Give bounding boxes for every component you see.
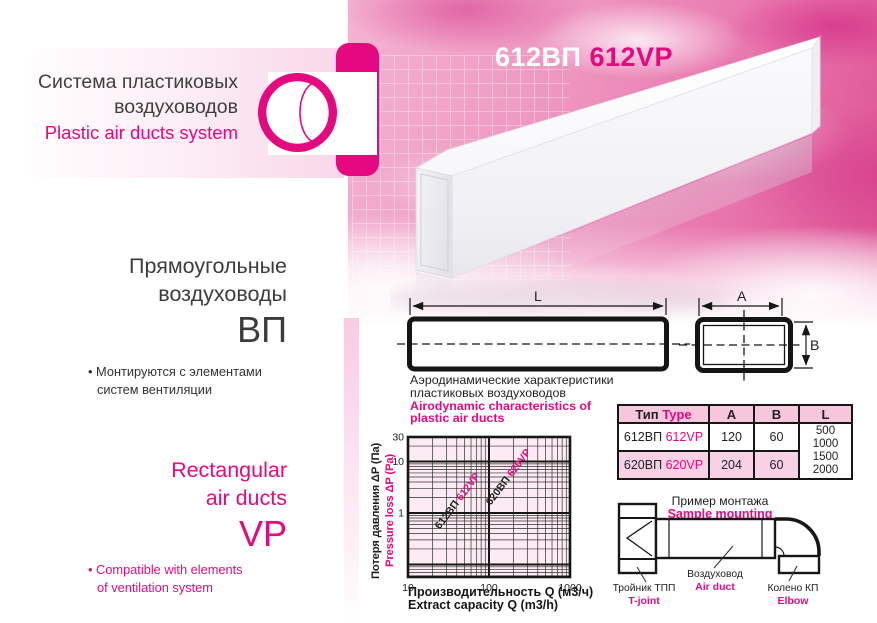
label-tjoint-en: T-joint: [612, 595, 676, 607]
section-title-en: Rectangular air ducts: [0, 456, 287, 512]
cell-type-620-ru: 620ВП: [624, 458, 662, 472]
cell-b-612: 60: [754, 423, 799, 451]
col-header-b: B: [754, 405, 799, 423]
label-duct-ru: Воздуховод: [683, 569, 747, 580]
table-header-row: Тип Type A B L: [618, 405, 852, 423]
table-row: 612ВП 612VP 120 60 500100015002000: [618, 423, 852, 451]
feature-en-line2: of ventilation system: [88, 579, 298, 597]
chart-title: Аэродинамические характеристики пластико…: [410, 374, 614, 425]
col-header-a: A: [709, 405, 754, 423]
product-photo-duct: [390, 25, 840, 325]
chart-xlabel-en: Extract capacity Q (m3/h): [408, 598, 558, 612]
feature-en-line1: Compatible with elements: [96, 562, 243, 577]
section-title-ru-line1: Прямоугольные: [0, 252, 287, 280]
label-duct-en: Air duct: [683, 581, 747, 593]
chart-xlabel-ru: Производительность Q (м3/ч): [408, 585, 593, 599]
length-option: 1500: [800, 451, 851, 464]
catalog-page: Система пластиковых воздуховодов Plastic…: [0, 0, 877, 623]
bullet-dot: •: [88, 364, 92, 379]
tjoint-shape: [619, 504, 656, 573]
dim-label-A: A: [737, 288, 747, 304]
duct-circle-icon: [262, 77, 333, 148]
cell-type-612-ru: 612ВП: [624, 430, 662, 444]
feature-bullet-en: • Compatible with elements of ventilatio…: [88, 561, 298, 596]
cell-type-620: 620ВП 620VP: [618, 451, 709, 479]
series-code-en: VP: [0, 513, 287, 555]
feature-ru-line2: систем вентиляции: [88, 381, 298, 399]
brand-title-ru-line1: Система пластиковых: [30, 70, 238, 95]
cell-type-612-en: 612VP: [666, 430, 704, 444]
y-tick-label: 10: [392, 456, 404, 468]
section-title-en-line2: air ducts: [0, 484, 287, 512]
col-header-type-en: Type: [662, 407, 691, 422]
brand-title-ru-line2: воздуховодов: [30, 95, 238, 120]
col-header-type-ru: Тип: [635, 407, 658, 422]
pink-side-strip: [344, 318, 359, 623]
series-code-ru: ВП: [0, 309, 287, 351]
spec-table: Тип Type A B L 612ВП 612VP 120 60 500100…: [617, 404, 853, 480]
section-title-en-line1: Rectangular: [0, 456, 287, 484]
label-elbow-en: Elbow: [761, 595, 825, 607]
duct-right-end: [812, 37, 820, 133]
length-option: 2000: [800, 464, 851, 477]
length-option: 500: [800, 425, 851, 438]
feature-ru-line1: Монтируются с элементами: [96, 364, 262, 379]
dim-label-B: B: [810, 337, 819, 353]
chart-title-ru-line2: пластиковых воздуховодов: [410, 387, 614, 400]
cell-b-620: 60: [754, 451, 799, 479]
brand-title: Система пластиковых воздуховодов Plastic…: [30, 70, 238, 145]
duct-shape: [656, 519, 775, 558]
brand-logo: [250, 35, 385, 185]
elbow-inner-curve: [775, 547, 784, 556]
chart-title-en-line2: plastic air ducts: [410, 412, 614, 425]
label-elbow-ru: Колено КП: [761, 583, 825, 594]
cell-type-612: 612ВП 612VP: [618, 423, 709, 451]
cell-a-620: 204: [709, 451, 754, 479]
section-title-ru-line2: воздуховоды: [0, 280, 287, 308]
section-title-ru: Прямоугольные воздуховоды: [0, 252, 287, 308]
y-tick-label: 1: [398, 507, 404, 519]
label-tjoint-ru: Тройник ТПП: [612, 583, 676, 594]
feature-bullet-ru: • Монтируются с элементами систем вентил…: [88, 363, 298, 398]
col-header-type: Тип Type: [618, 405, 709, 423]
cell-type-620-en: 620VP: [666, 458, 704, 472]
cell-length-options: 500100015002000: [799, 423, 852, 479]
brand-title-en: Plastic air ducts system: [30, 121, 238, 145]
elbow-foot: [779, 556, 819, 573]
col-header-l: L: [799, 405, 852, 423]
dim-label-L: L: [534, 288, 542, 304]
length-option: 1000: [800, 438, 851, 451]
bullet-dot: •: [88, 562, 92, 577]
cell-a-612: 120: [709, 423, 754, 451]
chart-title-ru-line1: Аэродинамические характеристики: [410, 374, 614, 387]
y-tick-label: 30: [392, 432, 404, 444]
